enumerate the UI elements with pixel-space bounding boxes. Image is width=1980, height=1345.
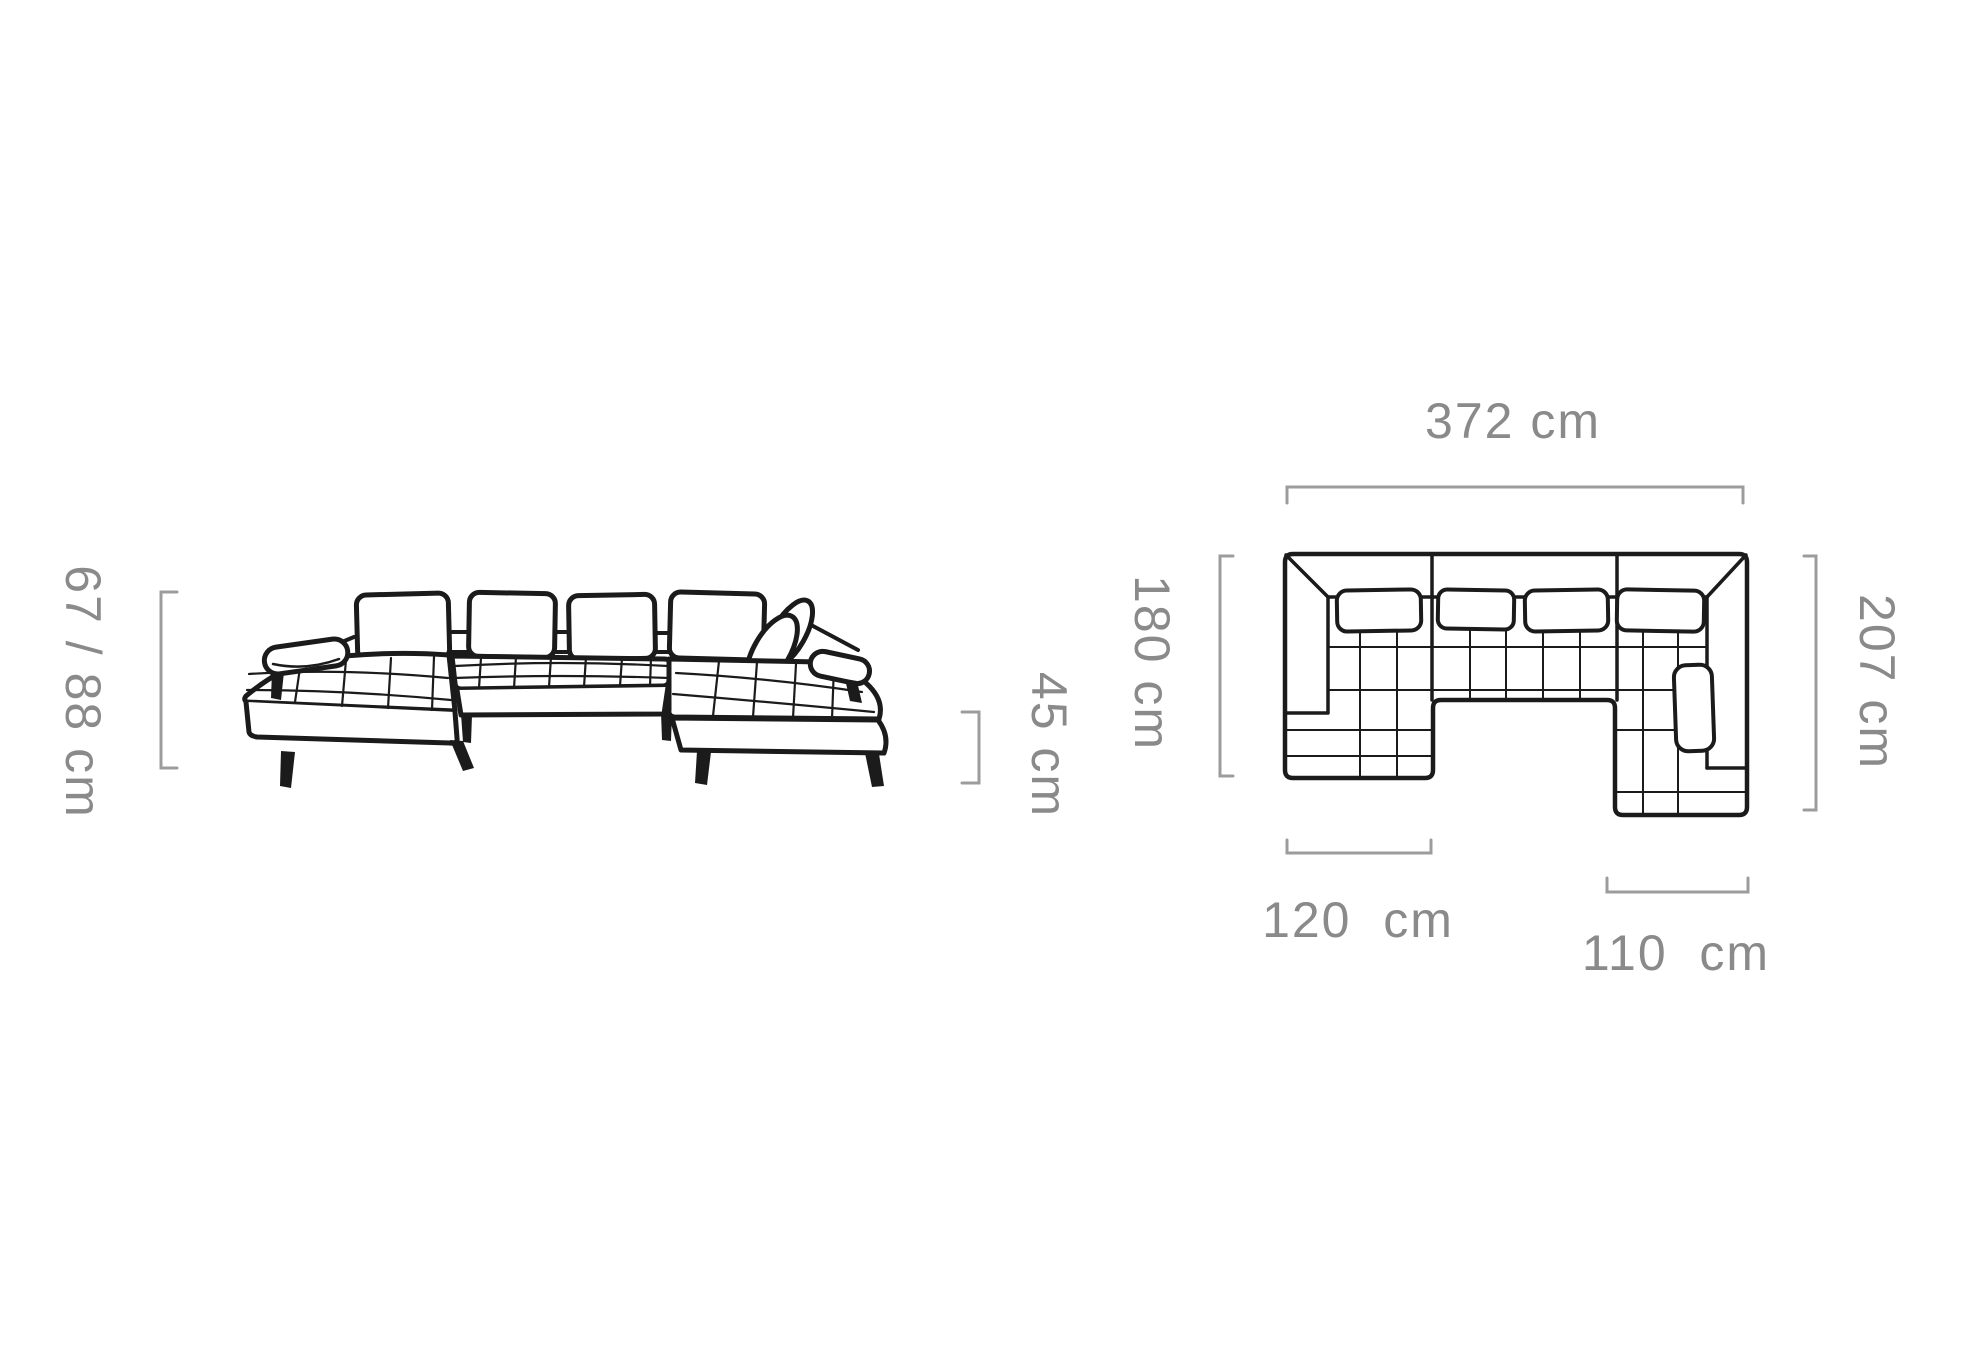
plan-view-drawing [1285, 554, 1747, 815]
back-pillow-icon [1525, 589, 1609, 631]
leg-icon [280, 751, 295, 788]
leg-icon [865, 753, 884, 787]
plan-pillows [1337, 589, 1715, 751]
dim-left-depth-label: 180 cm [1127, 575, 1177, 751]
back-pillow-icon [1438, 589, 1515, 629]
leg-icon [695, 751, 711, 785]
dim-total-height-label: 67 / 88 cm [58, 565, 108, 818]
bracket-left-depth [1220, 556, 1233, 776]
side-pillow-icon [1674, 664, 1715, 751]
dim-right-depth-label: 207 cm [1852, 594, 1902, 770]
back-pillow-icon [568, 594, 655, 659]
bracket-seat-height [962, 712, 979, 783]
leg-icon [450, 740, 474, 771]
leg-icon [661, 712, 672, 741]
bracket-left-chaise-width [1287, 840, 1431, 853]
back-pillow-icon [1617, 589, 1705, 632]
back-pillow-icon [1337, 589, 1422, 631]
bracket-right-chaise-width [1607, 878, 1748, 892]
front-view-drawing [245, 592, 886, 788]
dim-right-chaise-width-label: 110 cm [1582, 928, 1770, 978]
dim-seat-height-label: 45 cm [1024, 672, 1074, 818]
bracket-total-height [161, 592, 177, 768]
leg-icon [461, 714, 472, 743]
bracket-right-depth [1804, 556, 1816, 810]
sofa-dimension-diagram: 67 / 88 cm 45 cm 372 cm 180 cm 207 cm 12… [0, 0, 1980, 1345]
back-pillow-icon [468, 592, 555, 657]
diagram-drawing-layer [0, 0, 1980, 1345]
dim-left-chaise-width-label: 120 cm [1262, 895, 1454, 945]
bracket-total-width [1287, 487, 1743, 503]
dim-total-width-label: 372 cm [1425, 396, 1601, 446]
